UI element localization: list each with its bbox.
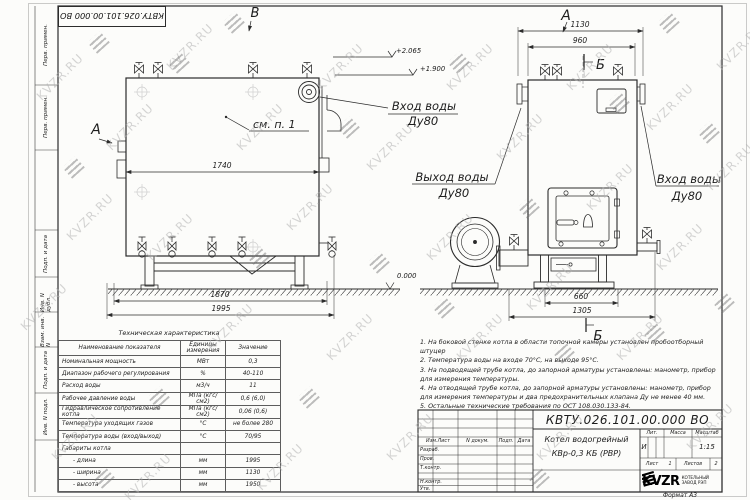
spec-header-units: Единицы измерения — [181, 341, 226, 356]
outlet-label-1: Выход воды — [415, 170, 488, 184]
spec-cell: мм — [181, 455, 226, 467]
revision-header-data: Дата — [515, 437, 533, 446]
spec-cell: 1950 — [226, 479, 281, 491]
spec-cell: Номинальная мощность — [59, 356, 181, 368]
spec-cell: МПа (кгс/см2) — [181, 405, 226, 418]
spec-row: Диапазон рабочего регулирования%40-110 — [59, 368, 281, 380]
dim-frame-length: 1870 — [210, 290, 229, 299]
lit-value: И — [640, 437, 648, 458]
spec-row: Гидравлическое сопротивление котлаМПа (к… — [59, 405, 281, 418]
dim-front-body: 960 — [573, 36, 588, 45]
spec-cell: Температура воды (вход/выход) — [59, 431, 181, 443]
spec-cell: м3/ч — [181, 380, 226, 392]
spec-cell: 40-110 — [226, 368, 281, 380]
role-razrab: Разраб. — [420, 448, 439, 453]
revision-header-podp: Подп. — [497, 437, 515, 446]
margin-stamp-label: Взам. инв. N — [36, 312, 56, 347]
view-label-a-front: А — [560, 8, 571, 24]
elevation-ground-value: 0.000 — [397, 272, 416, 280]
kvzr-logo-subtitle: КОТЕЛЬНЫЙ ЗАВОД РЭП — [682, 476, 709, 486]
margin-stamp-label: Инв. N дубл. — [36, 277, 56, 312]
margin-stamp-label: Перв. примен. — [36, 6, 56, 85]
spec-cell: 0,6 (6,0) — [226, 392, 281, 405]
datum-marks — [134, 84, 261, 255]
spec-header-name: Наименование показателя — [59, 341, 181, 356]
elevation-top-value: +2.065 — [396, 47, 421, 55]
scale-value: 1:15 — [692, 437, 722, 458]
dim-full-width: 1305 — [572, 306, 591, 315]
notes-list: 1. На боковой стенке котла в области топ… — [420, 339, 721, 413]
spec-cell: 11 — [226, 380, 281, 392]
margin-stamp-label: Перв. примен. — [36, 85, 56, 150]
spec-cell: 70/95 — [226, 431, 281, 443]
ground-line — [108, 289, 718, 296]
spec-cell: - высота — [59, 479, 181, 491]
mass-label: Масса — [664, 429, 692, 437]
outlet-label-2: Ду80 — [438, 186, 469, 200]
spec-cell: мм — [181, 479, 226, 491]
spec-cell: МПа (кгс/см2) — [181, 392, 226, 405]
note-line: 1. На боковой стенке котла в области топ… — [420, 339, 721, 356]
rotated-doc-number-stamp: КВТУ.026.101.00.000 ВО — [58, 6, 166, 27]
dimension-lines — [107, 27, 655, 321]
spec-table-title: Техническая характеристика — [58, 330, 280, 337]
dim-front-overall: 1130 — [570, 20, 589, 29]
spec-cell: °С — [181, 431, 226, 443]
spec-cell: Температура уходящих газов — [59, 418, 181, 430]
spec-row: Температура воды (вход/выход)°С70/95 — [59, 431, 281, 443]
spec-cell: Расход воды — [59, 380, 181, 392]
spec-table-body: Номинальная мощностьМВт0,3Диапазон рабоч… — [59, 356, 281, 492]
see-note-callout: см. п. 1 — [253, 118, 296, 131]
spec-cell: % — [181, 368, 226, 380]
spec-row: Расход водым3/ч11 — [59, 380, 281, 392]
dim-overall-length: 1995 — [211, 304, 230, 313]
margin-stamp-label: Инв. N подл. — [36, 393, 56, 440]
margin-stamp-label: Подп. и дата — [36, 230, 56, 277]
spec-cell — [181, 443, 226, 455]
product-title-line2: КВр-0,3 КБ (РВР) — [533, 447, 640, 460]
leaders-and-marks — [99, 21, 719, 332]
manufacturer-logo: KVZR КОТЕЛЬНЫЙ ЗАВОД РЭП — [642, 471, 721, 491]
scale-label: Масштаб — [692, 429, 722, 437]
role-utv: Утв. — [420, 487, 430, 492]
note-line: 3. На подводящей трубе котла, до запорно… — [420, 367, 721, 384]
lit-label: Лит. — [640, 429, 664, 437]
sheet-label: Лист — [640, 458, 664, 470]
title-block-doc-number: КВТУ.026.101.00.000 ВО — [533, 410, 722, 429]
sheet-value: 1 — [664, 458, 676, 470]
note-line: 4. На отводящей трубе котла, до запорной… — [420, 385, 721, 402]
margin-stamp-label: Подп. и дата — [36, 347, 56, 393]
spec-cell: 0,3 — [226, 356, 281, 368]
spec-cell: Габариты котла — [59, 443, 181, 455]
spec-cell: мм — [181, 467, 226, 479]
dim-base-width: 660 — [574, 292, 589, 301]
spec-cell: Диапазон рабочего регулирования — [59, 368, 181, 380]
note-line: 2. Температура воды на входе 70°С, на вы… — [420, 357, 721, 366]
dim-body-length: 1740 — [212, 161, 231, 170]
product-title-line1: Котел водогрейный — [533, 432, 640, 447]
spec-header-value: Значение — [226, 341, 281, 356]
spec-row: Рабочее давление водыМПа (кгс/см2)0,6 (6… — [59, 392, 281, 405]
section-mark-top: Б — [596, 58, 605, 73]
view-label-b-top: В — [251, 6, 260, 21]
side-view-linework — [117, 63, 341, 290]
spec-row: - высотамм1950 — [59, 479, 281, 491]
role-nkontr: Н.контр. — [420, 480, 442, 485]
spec-row: Температура уходящих газов°Сне более 280 — [59, 418, 281, 430]
spec-cell: Рабочее давление воды — [59, 392, 181, 405]
role-tkontr: Т.контр. — [420, 466, 441, 471]
inlet-label-front-1: Вход воды — [657, 172, 721, 186]
inlet-label-front-2: Ду80 — [671, 189, 702, 203]
kvzr-logo-icon — [642, 471, 657, 487]
spec-cell: - ширина — [59, 467, 181, 479]
elevation-marks — [333, 51, 417, 289]
spec-cell: Гидравлическое сопротивление котла — [59, 405, 181, 418]
spec-table: Наименование показателя Единицы измерени… — [58, 340, 281, 492]
spec-cell: 1130 — [226, 467, 281, 479]
format-label: Формат А3 — [630, 493, 730, 499]
spec-row: Габариты котла — [59, 443, 281, 455]
revision-header-ndoc: N докум. — [458, 437, 497, 446]
elevation-mid-value: +1.900 — [420, 65, 445, 73]
sheets-label: Листов — [676, 458, 710, 470]
spec-table-head-row: Наименование показателя Единицы измерени… — [59, 341, 281, 356]
spec-cell — [226, 443, 281, 455]
spec-cell: °С — [181, 418, 226, 430]
inlet-label-side-2: Ду80 — [407, 114, 438, 128]
spec-cell: - длина — [59, 455, 181, 467]
view-label-a-side: А — [90, 122, 101, 138]
spec-row: Номинальная мощностьМВт0,3 — [59, 356, 281, 368]
revision-header-izm-list: Изм.Лист — [418, 437, 458, 446]
inlet-label-side-1: Вход воды — [392, 99, 456, 113]
spec-cell: не более 280 — [226, 418, 281, 430]
spec-row: - ширинамм1130 — [59, 467, 281, 479]
spec-row: - длинамм1995 — [59, 455, 281, 467]
drawing-sheet: 1740 1870 1995 А В см. п. 1 +2.065 +1.90… — [0, 0, 750, 500]
spec-cell: 0,06 (0,6) — [226, 405, 281, 418]
sheets-value: 2 — [710, 458, 722, 470]
spec-cell: МВт — [181, 356, 226, 368]
role-prov: Пров. — [420, 457, 434, 462]
spec-cell: 1995 — [226, 455, 281, 467]
